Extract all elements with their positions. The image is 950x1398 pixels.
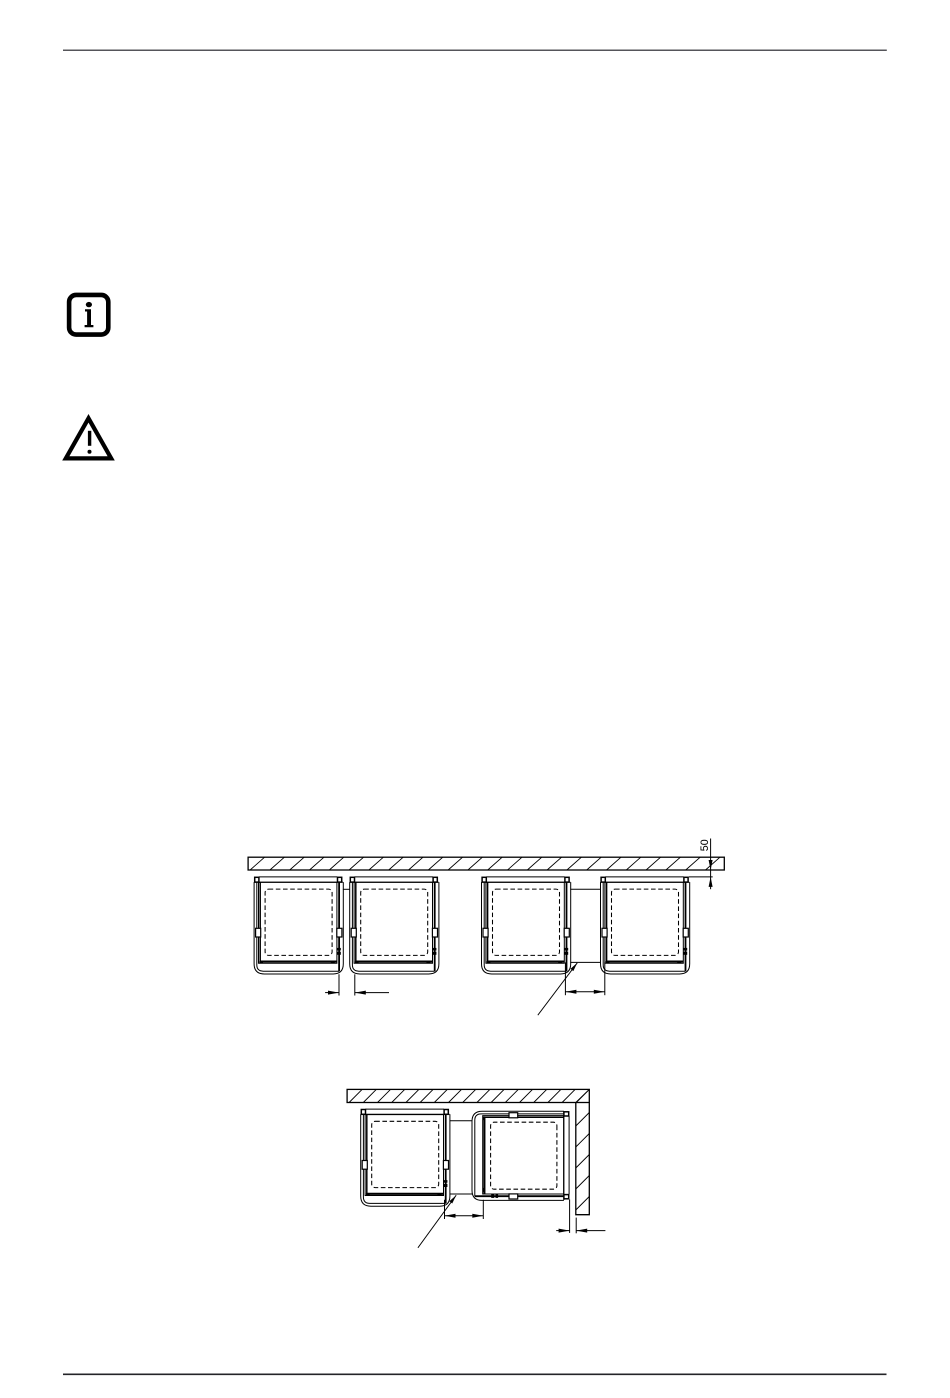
svg-text:50: 50 (699, 839, 711, 851)
